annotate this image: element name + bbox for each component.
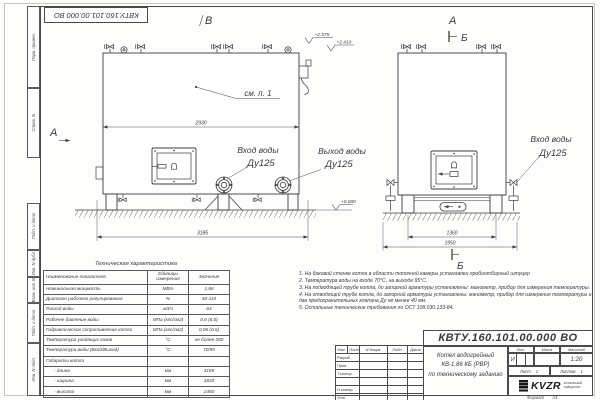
front-inlet-size: Ду125 bbox=[246, 158, 275, 169]
rev-header: Лист bbox=[348, 346, 360, 354]
ash-pan bbox=[440, 203, 466, 212]
note-line: 2. Температура воды на входе 70°С, на вы… bbox=[299, 278, 593, 284]
front-outlet-label: Выход воды bbox=[318, 146, 367, 156]
sheets-total-cell: Листов 1 bbox=[550, 366, 593, 376]
spec-value: не более 280 bbox=[189, 335, 230, 345]
ground-hatch bbox=[75, 210, 316, 217]
air-valve-icon bbox=[224, 44, 233, 53]
table-row: Температура воды (Вход/Выход)°С70/95 bbox=[44, 346, 230, 356]
spec-unit: м3/ч bbox=[148, 305, 189, 315]
spec-unit: °С bbox=[148, 346, 189, 356]
drawing-sheet: Перв. примен. Справ. N Подп. и дата Инв.… bbox=[0, 0, 600, 400]
air-valve-icon bbox=[263, 44, 272, 53]
front-outlet-size: Ду125 bbox=[324, 159, 353, 170]
sheet-number-cell: Лист 1 bbox=[508, 366, 550, 376]
table-row: Расход водым3/ч64 bbox=[44, 305, 230, 315]
dim-2930: 2930 bbox=[194, 121, 206, 127]
spec-value: 1830 bbox=[189, 377, 230, 387]
spec-section: Техническая характеристика Наименование … bbox=[43, 261, 229, 398]
side-inlet-label: Вход воды bbox=[530, 134, 572, 144]
title-line: Котел водогрейный bbox=[437, 352, 494, 361]
table-row: - высотамм2460 bbox=[44, 387, 230, 397]
manufacturer-logo: KVZR КОТЕЛЬНЫЙ ЗАВОД РЭП bbox=[508, 376, 593, 396]
note-line: 1. На боковой стенке котла в области топ… bbox=[299, 271, 593, 277]
spec-value: 3185 bbox=[189, 366, 230, 376]
spec-header-row: Наименование показателя Единицы измерени… bbox=[44, 270, 230, 284]
spec-unit: % bbox=[148, 294, 189, 304]
mass-value-cell bbox=[534, 353, 560, 366]
revision-row: Разраб. bbox=[336, 354, 424, 362]
kvzr-logo-mark bbox=[519, 380, 528, 392]
spec-name: - высота bbox=[44, 387, 148, 397]
table-row: Гидравлическое сопротивление котлаМПа (к… bbox=[44, 325, 230, 335]
revision-row bbox=[336, 378, 424, 386]
logo-sub-line: ЗАВОД РЭП bbox=[564, 386, 582, 390]
lit-value-cell: И bbox=[508, 353, 534, 366]
air-valve-icon bbox=[402, 44, 411, 53]
sheet-value: 1 bbox=[536, 369, 538, 374]
table-row: - ширинамм1830 bbox=[44, 377, 230, 387]
drain-valve-icon bbox=[192, 194, 200, 202]
side-inlet-fitting bbox=[506, 180, 518, 212]
lifting-lug-icon bbox=[121, 47, 127, 53]
title-block: КВТУ.160.101.00.000 ВО Изм. Лист N докум… bbox=[335, 330, 593, 396]
front-view-letter: В bbox=[205, 15, 212, 27]
rev-header: Изм. bbox=[336, 346, 348, 354]
rev-role-label: Т.контр. bbox=[336, 370, 360, 378]
spec-name: - ширина bbox=[44, 377, 148, 387]
revision-header-row: Изм. Лист N докум. Подп. Дата bbox=[336, 346, 424, 354]
doc-number-cell: КВТУ.160.101.00.000 ВО bbox=[423, 330, 593, 346]
spec-name: Температура воды (Вход/Выход) bbox=[44, 346, 148, 356]
revision-row: Пров. bbox=[336, 362, 424, 370]
rev-role-label bbox=[336, 378, 360, 386]
sheets-label: Листов bbox=[560, 369, 575, 374]
spec-unit: мм bbox=[148, 366, 189, 376]
spec-unit bbox=[148, 356, 189, 366]
spec-unit: мм bbox=[148, 377, 189, 387]
technical-notes: 1. На боковой стенке котла в области топ… bbox=[299, 271, 593, 312]
spec-name: Номинальная мощность bbox=[44, 284, 148, 294]
dim-1360: 1360 bbox=[446, 231, 457, 237]
spec-header-name: Наименование показателя bbox=[44, 270, 148, 284]
note-line: 3. На подводящей трубе котла, до запорно… bbox=[299, 285, 593, 291]
scale-header: Масштаб bbox=[560, 346, 593, 353]
lit-header: Лит. bbox=[508, 346, 534, 353]
rev-role-label: Разраб. bbox=[336, 354, 360, 362]
spec-name: - длина bbox=[44, 366, 148, 376]
air-valve-icon bbox=[417, 44, 426, 53]
side-inlet-size: Ду125 bbox=[538, 148, 567, 159]
table-row: Габариты котла bbox=[44, 356, 230, 366]
spec-name: Гидравлическое сопротивление котла bbox=[44, 325, 148, 335]
revision-row: Н.контр. bbox=[336, 385, 424, 393]
side-left-fitting bbox=[386, 180, 398, 212]
spec-unit: МВт bbox=[148, 284, 189, 294]
spec-value: 0,06 (0,6) bbox=[189, 325, 230, 335]
callout-see-note: см. п. 1 bbox=[244, 89, 271, 98]
rev-role-label: Утв. bbox=[336, 393, 360, 400]
spec-table-title: Техническая характеристика bbox=[43, 261, 229, 267]
doc-number: КВТУ.160.101.00.000 ВО bbox=[438, 332, 577, 344]
title-line: по техническому заданию bbox=[428, 371, 502, 380]
flue-piping bbox=[299, 60, 311, 95]
spec-value: 70/95 bbox=[189, 346, 230, 356]
table-row: Рабочее давление водыМПа (кгс/см2)0,6 (6… bbox=[44, 315, 230, 325]
spec-name: Расход воды bbox=[44, 305, 148, 315]
sheet-label: Лист bbox=[520, 369, 531, 374]
front-view-arrow-letter: А bbox=[49, 127, 57, 139]
scale-value-cell: 1:20 bbox=[560, 353, 593, 366]
side-view bbox=[383, 44, 520, 220]
side-view-letter: А bbox=[448, 15, 456, 27]
air-valve-icon bbox=[477, 44, 486, 53]
side-boiler-body bbox=[398, 53, 506, 195]
spec-name: Температура уходящих газов bbox=[44, 335, 148, 345]
rev-role-label: Пров. bbox=[336, 362, 360, 370]
spec-header-units: Единицы измерения bbox=[148, 270, 189, 284]
air-valve-icon bbox=[136, 44, 145, 53]
front-inlet-label: Вход воды bbox=[237, 145, 279, 155]
drain-valve-icon bbox=[118, 194, 126, 202]
spec-name: Диапазон рабочего регулирования bbox=[44, 294, 148, 304]
spec-value: 1,86 bbox=[189, 284, 230, 294]
spec-unit: МПа (кгс/см2) bbox=[148, 315, 189, 325]
rev-header: N докум. bbox=[360, 346, 388, 354]
mass-header: Масса bbox=[534, 346, 560, 353]
drawing-title: Котел водогрейный КВ-1,86 КБ (РВР) по те… bbox=[423, 346, 508, 396]
front-supports bbox=[106, 194, 298, 210]
spec-unit: мм bbox=[148, 387, 189, 397]
spec-value: 64 bbox=[189, 305, 230, 315]
dim-1950: 1950 bbox=[444, 241, 455, 247]
rev-header: Подп. bbox=[388, 346, 408, 354]
section-letter-top: Б bbox=[461, 33, 468, 44]
rev-role-label: Н.контр. bbox=[336, 385, 360, 393]
ground-hatch bbox=[383, 213, 520, 220]
sheets-value: 1 bbox=[580, 369, 582, 374]
lit-value: И bbox=[509, 354, 517, 365]
elevation-2575: +2.575 bbox=[315, 32, 330, 38]
spec-value: 2460 bbox=[189, 387, 230, 397]
revision-table: Изм. Лист N докум. Подп. Дата Разраб. Пр… bbox=[335, 345, 424, 400]
spec-value bbox=[189, 356, 230, 366]
table-row: - длинамм3185 bbox=[44, 366, 230, 376]
table-row: Диапазон рабочего регулирования%40-110 bbox=[44, 294, 230, 304]
air-valve-icon bbox=[105, 44, 114, 53]
format-value: А3 bbox=[552, 395, 557, 400]
revision-row: Т.контр. bbox=[336, 370, 424, 378]
rev-header: Дата bbox=[408, 346, 424, 354]
table-row: Номинальная мощностьМВт1,86 bbox=[44, 284, 230, 294]
format-label: Формат bbox=[527, 395, 544, 400]
spec-value: 0,6 (6,0) bbox=[189, 315, 230, 325]
spec-value: 40-110 bbox=[189, 294, 230, 304]
note-line: 4. На отводящей трубе котла, до запорной… bbox=[299, 292, 593, 305]
spec-name: Габариты котла bbox=[44, 356, 148, 366]
elevation-2410: +2.410 bbox=[337, 40, 352, 46]
air-valve-icon bbox=[212, 44, 221, 53]
drain-valve-icon bbox=[253, 194, 261, 202]
kvzr-logo-subtitle: КОТЕЛЬНЫЙ ЗАВОД РЭП bbox=[564, 382, 582, 389]
spec-unit: МПа (кгс/см2) bbox=[148, 325, 189, 335]
front-view bbox=[75, 44, 316, 217]
kvzr-logo-text: KVZR bbox=[531, 380, 561, 392]
dim-3185: 3185 bbox=[197, 231, 208, 237]
elevation-zero: +0.000 bbox=[341, 199, 356, 205]
note-line: 5. Остальные технические требования по О… bbox=[299, 305, 593, 311]
lifting-lug-icon bbox=[285, 47, 291, 53]
format-note: Формат А3 bbox=[527, 395, 557, 400]
side-stub bbox=[96, 167, 103, 179]
revision-row: Утв. bbox=[336, 393, 424, 400]
spec-header-value: Значение bbox=[189, 270, 230, 284]
air-valve-icon bbox=[492, 44, 501, 53]
spec-table: Наименование показателя Единицы измерени… bbox=[43, 270, 230, 398]
table-row: Температура уходящих газов°Сне более 280 bbox=[44, 335, 230, 345]
spec-name: Рабочее давление воды bbox=[44, 315, 148, 325]
spec-unit: °С bbox=[148, 335, 189, 345]
side-supports bbox=[402, 195, 502, 213]
title-line: КВ-1,86 КБ (РВР) bbox=[442, 361, 490, 370]
